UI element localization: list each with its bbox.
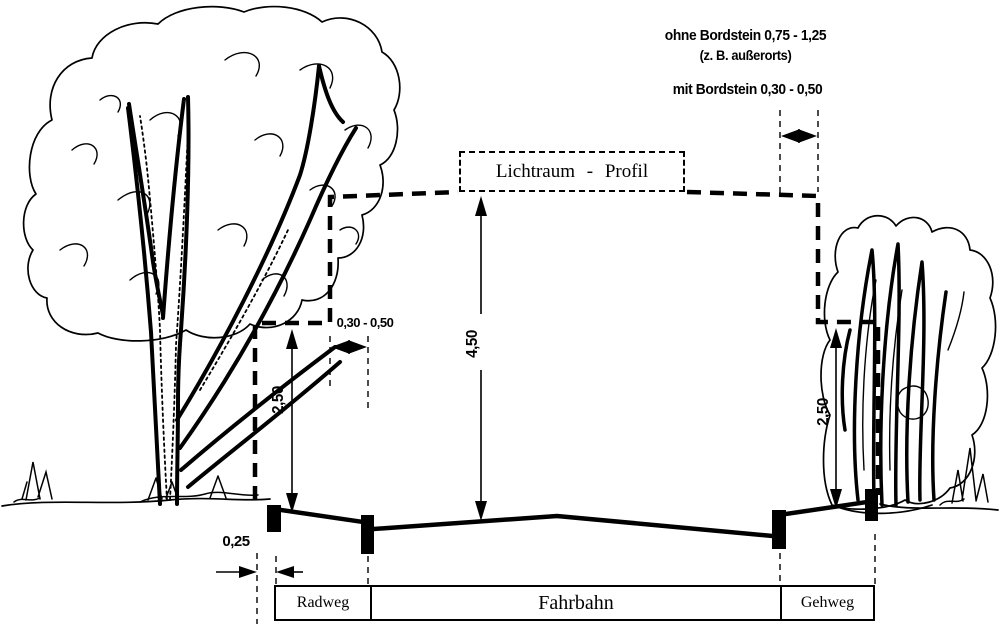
dimension-arrow-0-25: [216, 566, 303, 578]
dimension-label-verge-width: 0,30 - 0,50: [330, 316, 400, 329]
dimension-label-side-height-left: 2,50: [256, 378, 302, 422]
zone-table: Radweg Fahrbahn Gehweg: [274, 585, 875, 621]
shrub-sketch: [821, 216, 996, 514]
ground-sketch: [2, 448, 998, 510]
dimension-arrow-0-30-0-50: [331, 340, 367, 354]
dimension-label-side-height-right: 2,50: [801, 390, 847, 434]
dimension-label-safety-strip: 0,25: [210, 534, 262, 549]
lichtraum-profil-label: Lichtraum - Profil: [496, 161, 648, 183]
lichtraum-profil-box: Lichtraum - Profil: [459, 151, 685, 192]
note-ohne-bordstein: ohne Bordstein 0,75 - 1,25: [656, 26, 835, 46]
diagram-linework: [0, 0, 1000, 628]
curb-fahrbahn-gehweg: [772, 510, 786, 549]
note-ohne-bordstein-example: (z. B. außerorts): [656, 46, 835, 64]
shrub-leaves: [842, 244, 946, 505]
curb-radweg-fahrbahn: [361, 515, 374, 554]
tree-trunk: [128, 66, 356, 504]
zone-cell-radweg: Radweg: [276, 587, 370, 619]
zone-cell-fahrbahn: Fahrbahn: [370, 587, 780, 619]
radweg-surface: [281, 510, 363, 522]
note-mit-bordstein: mit Bordstein 0,30 - 0,50: [658, 80, 837, 100]
zone-cell-gehweg: Gehweg: [780, 587, 873, 619]
road-cross-section: [267, 489, 878, 554]
tree-sketch: [24, 7, 400, 504]
dimension-arrow-mit-bordstein: [781, 129, 817, 143]
curb-left-outer: [267, 505, 281, 532]
fahrbahn-surface: [374, 516, 773, 536]
dimension-label-clearance-height: 4,50: [450, 322, 496, 366]
clearance-profile-diagram: ohne Bordstein 0,75 - 1,25 (z. B. außero…: [0, 0, 1000, 628]
